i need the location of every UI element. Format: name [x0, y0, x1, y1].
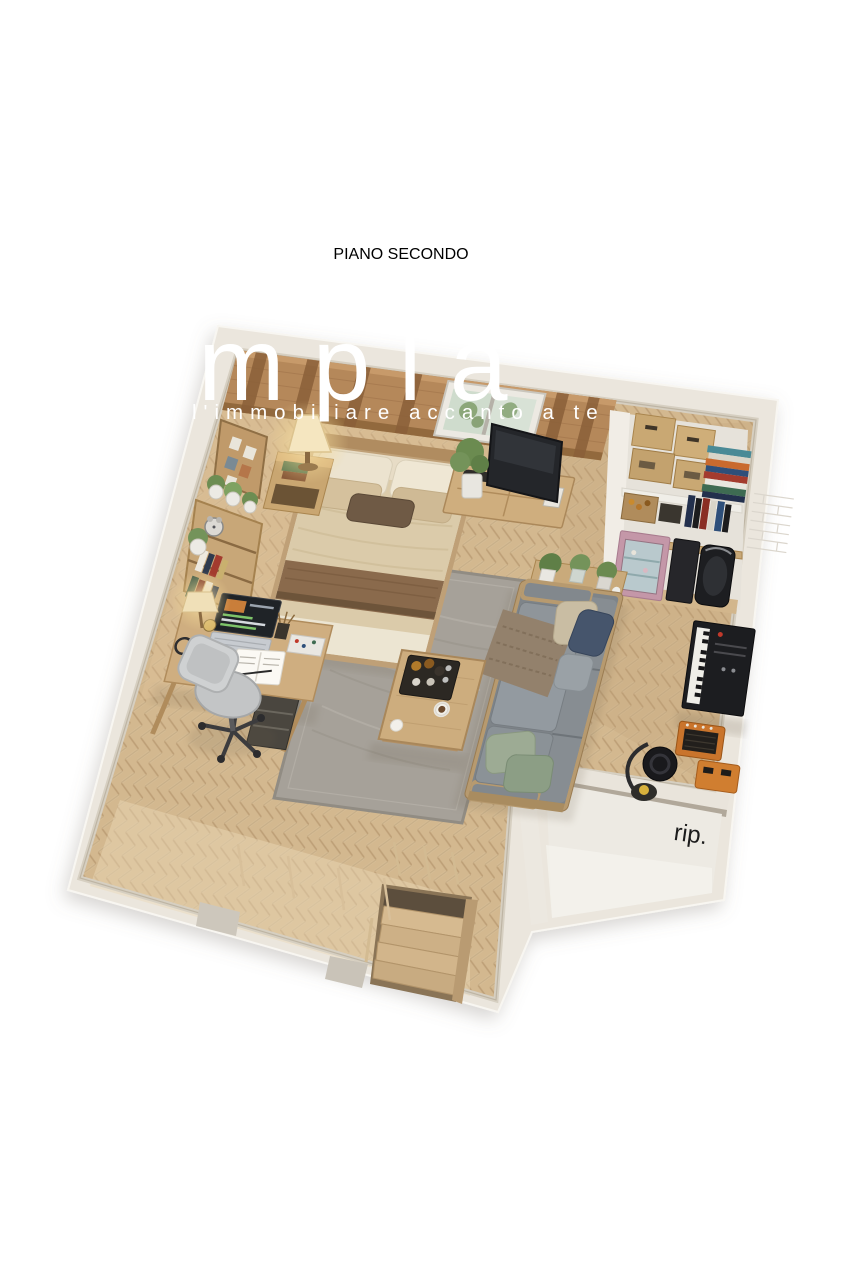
- alarm-clock: [205, 516, 223, 536]
- floor-plan-page: PIANO SECONDO: [0, 0, 842, 1264]
- page-title: PIANO SECONDO: [333, 246, 468, 264]
- organizer-box: [287, 634, 325, 656]
- floor-plan-render: mpla l'immobiliare accanto a te rip.: [0, 0, 842, 1264]
- desk-lamp: [171, 571, 231, 631]
- apartment-3d-plan: mpla l'immobiliare accanto a te rip.: [68, 307, 794, 1012]
- watermark-tagline: l'immobiliare accanto a te: [192, 401, 605, 424]
- rip-label: rip.: [672, 819, 709, 850]
